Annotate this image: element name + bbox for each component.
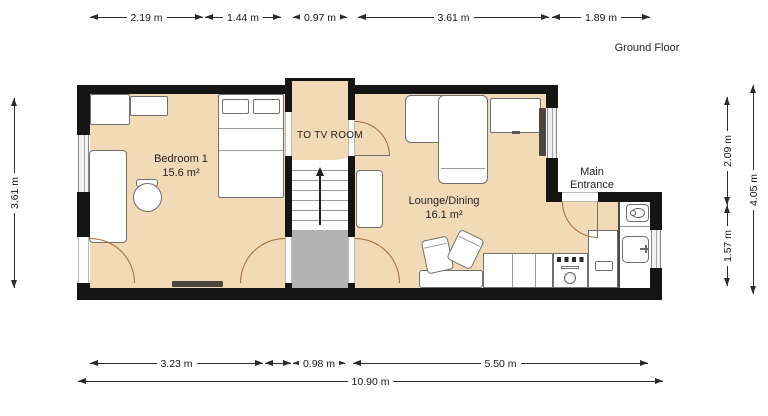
vanity-edge-line [620, 226, 650, 227]
stove-grill-slot [561, 266, 579, 269]
dim-arrow [195, 14, 203, 20]
lounge-area: 16.1 m² [384, 208, 504, 222]
dim-label: 2.09 m [722, 131, 734, 171]
dim-label: 4.05 m [748, 169, 760, 209]
main-entrance-line2: Entrance [552, 179, 632, 192]
corridor-label: TO TV ROOM [270, 130, 390, 141]
bed [218, 94, 284, 198]
dim-bottom-1: 3.23 m [90, 363, 263, 364]
stove [553, 253, 588, 288]
dim-arrow [11, 98, 17, 106]
wall-right-lounge-upper [546, 85, 558, 108]
dim-bottom-3: 5.50 m [353, 363, 648, 364]
oven-knob [564, 272, 576, 284]
wall-left-upper [77, 85, 90, 135]
counter-divider [535, 254, 536, 287]
dim-arrow [655, 378, 663, 384]
lounge-label: Lounge/Dining 16.1 m² [384, 194, 504, 222]
dim-arrow [724, 278, 730, 286]
sofa-cushion-line [441, 168, 485, 169]
toilet [626, 204, 649, 222]
dim-top-5: 1.89 m [552, 17, 650, 18]
dim-arrow [750, 286, 756, 294]
dim-arrow [642, 14, 650, 20]
sink [595, 261, 613, 271]
dim-arrow [339, 14, 347, 20]
sofa-arm-vertical [438, 95, 488, 184]
dim-label: 2.19 m [126, 12, 166, 24]
dim-label: 5.50 m [480, 358, 520, 370]
dim-bottom-stub [265, 363, 291, 364]
stair-direction-line [319, 176, 321, 225]
dim-arrow [255, 360, 263, 366]
toilet-flush [630, 210, 636, 216]
hall-landing [292, 230, 348, 288]
dim-label: 0.97 m [300, 12, 340, 24]
console-table [356, 170, 383, 228]
wardrobe-unit-1 [90, 94, 130, 125]
dim-label: 1.44 m [223, 12, 263, 24]
counter-divider [512, 254, 513, 287]
bedroom-label: Bedroom 1 15.6 m² [121, 152, 241, 180]
window-left-wall [78, 135, 89, 192]
dim-label: 3.61 m [9, 173, 21, 213]
dim-top-3: 0.97 m [293, 17, 347, 18]
cabinet-handle [512, 131, 520, 134]
dim-arrow [724, 205, 730, 213]
lounge-radiator [539, 108, 546, 156]
lounge-name: Lounge/Dining [384, 194, 504, 208]
door-leaf-lounge-upper [355, 155, 390, 156]
wall-corridor-left-upper [285, 78, 292, 112]
dim-right-overall: 4.05 m [753, 85, 754, 294]
wall-corridor-right-upper [348, 78, 355, 120]
bed-pillow [253, 99, 280, 114]
desk-chair [133, 183, 162, 212]
dim-label: 3.23 m [156, 358, 196, 370]
dim-top-1: 2.19 m [90, 17, 203, 18]
corridor-floor [292, 81, 348, 160]
main-entrance-line1: Main [552, 166, 632, 179]
side-cabinet [490, 98, 541, 133]
dim-arrow [11, 280, 17, 288]
bedroom-area: 15.6 m² [121, 166, 241, 180]
floor-plan-canvas: Bedroom 1 15.6 m² Lounge/Dining 16.1 m² … [0, 0, 768, 416]
chair-back-line [424, 243, 447, 249]
bed-pillow [222, 99, 249, 114]
door-opening-bedroom-left [78, 237, 89, 283]
dim-arrow [724, 197, 730, 205]
bed-blanket-line [219, 128, 283, 129]
chair-back-line [459, 236, 480, 247]
wall-corridor-right-mid [348, 156, 355, 237]
dim-right-1: 2.09 m [727, 97, 728, 205]
wardrobe-unit-2 [130, 96, 168, 116]
dim-arrow [273, 14, 281, 20]
dim-arrow [358, 14, 366, 20]
dim-arrow [541, 14, 549, 20]
wall-top-lounge [355, 85, 558, 94]
wall-corridor-left-mid [285, 156, 292, 237]
dim-label: 1.57 m [722, 225, 734, 265]
dim-label: 0.98 m [299, 358, 339, 370]
window-bathroom-right [651, 230, 661, 268]
wall-far-right-upper [650, 192, 662, 230]
dim-arrow [283, 360, 291, 366]
dim-arrow [78, 378, 86, 384]
window-lounge-right [547, 108, 557, 158]
kitchen-counter-deep [588, 230, 618, 288]
door-opening-lounge-hall [348, 237, 355, 283]
dim-label: 10.90 m [348, 376, 394, 388]
main-entrance-label: Main Entrance [552, 166, 632, 192]
dim-arrow [724, 97, 730, 105]
dim-arrow [90, 14, 98, 20]
door-opening-bedroom-hall [285, 237, 292, 283]
bedroom-name: Bedroom 1 [121, 152, 241, 166]
dim-right-2: 1.57 m [727, 205, 728, 286]
wall-top-bedroom [77, 85, 285, 94]
dim-arrow [90, 360, 98, 366]
dim-total-width: 10.90 m [78, 381, 663, 382]
wall-bottom [77, 288, 662, 300]
kitchen-counter [483, 253, 553, 288]
dim-label: 1.89 m [581, 12, 621, 24]
door-opening-main-entrance [562, 192, 598, 202]
dim-arrow [353, 360, 361, 366]
stove-burners [557, 257, 585, 262]
wall-corridor-top [285, 78, 355, 81]
bedroom-radiator [172, 281, 223, 287]
dim-arrow [640, 360, 648, 366]
dim-label: 3.61 m [433, 12, 473, 24]
dim-top-4: 3.61 m [358, 17, 549, 18]
dim-arrow [205, 14, 213, 20]
bed-fold-line [219, 150, 283, 151]
dim-bottom-2: 0.98 m [293, 363, 345, 364]
stair-up-arrow-icon [316, 167, 324, 176]
wash-basin [622, 236, 649, 263]
basin-tap-handle [645, 245, 647, 253]
wall-left-mid [77, 192, 90, 237]
dim-arrow [265, 360, 273, 366]
floor-title: Ground Floor [597, 41, 697, 55]
door-leaf-main-entrance [597, 202, 598, 238]
dim-top-2: 1.44 m [205, 17, 281, 18]
dim-arrow [552, 14, 560, 20]
dim-left-1: 3.61 m [14, 98, 15, 288]
dim-arrow [750, 85, 756, 93]
